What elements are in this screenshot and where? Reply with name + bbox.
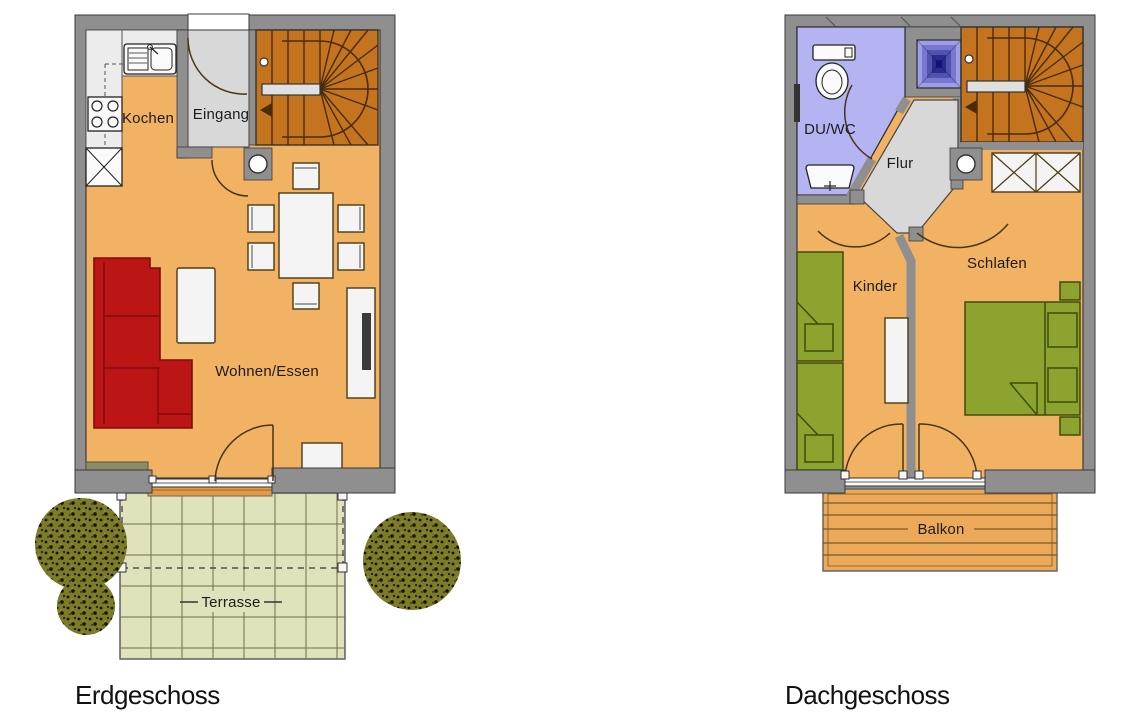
single-bed-icon bbox=[797, 363, 843, 470]
wash-basin-icon bbox=[806, 165, 854, 191]
tree-icon bbox=[363, 512, 461, 610]
nightstand bbox=[1060, 282, 1080, 300]
lowboard-cabinet bbox=[302, 443, 342, 470]
kitchen-sink-icon bbox=[124, 44, 176, 74]
balcony-area: Balkon bbox=[823, 489, 1057, 571]
stair-handrail-slot bbox=[967, 81, 1025, 92]
room-label-child: Kinder bbox=[853, 278, 898, 295]
wardrobe-icon bbox=[992, 153, 1080, 192]
spiral-stairs-ground bbox=[256, 30, 378, 145]
window-sill bbox=[86, 462, 148, 470]
nightstand bbox=[1060, 417, 1080, 435]
room-label-hall: Flur bbox=[887, 155, 914, 172]
pergola-post bbox=[338, 563, 347, 572]
shelf bbox=[885, 318, 908, 403]
tree-icon bbox=[35, 498, 127, 590]
room-label-balcony: Balkon bbox=[917, 521, 964, 538]
attic-floor-plan: DU/WC bbox=[785, 15, 1095, 710]
room-label-kitchen: Kochen bbox=[122, 110, 174, 127]
room-label-entrance: Eingang bbox=[193, 106, 249, 123]
terrace-area: Terrasse bbox=[117, 491, 347, 659]
floor-title-attic: Dachgeschoss bbox=[785, 680, 950, 710]
column-post bbox=[244, 148, 272, 180]
tall-cabinet-icon bbox=[86, 148, 122, 186]
coffee-table bbox=[177, 268, 215, 343]
stair-post-icon bbox=[965, 55, 973, 63]
single-bed-icon bbox=[797, 252, 843, 361]
dining-table bbox=[279, 193, 333, 278]
tv-icon bbox=[362, 313, 371, 370]
stove-icon bbox=[88, 97, 122, 131]
floor-title-ground: Erdgeschoss bbox=[75, 680, 220, 710]
spiral-stairs-attic bbox=[961, 27, 1083, 142]
double-bed-icon bbox=[965, 282, 1080, 435]
room-label-bath: DU/WC bbox=[804, 121, 856, 138]
room-label-terrace: Terrasse bbox=[201, 594, 260, 611]
tv-sideboard bbox=[347, 288, 375, 398]
stair-handrail-slot bbox=[262, 84, 320, 95]
column-post bbox=[950, 148, 982, 180]
room-label-living: Wohnen/Essen bbox=[215, 363, 319, 380]
ground-floor-plan: Kochen Eingang bbox=[35, 14, 461, 710]
stair-post-icon bbox=[260, 58, 268, 66]
tree-icon bbox=[57, 577, 115, 635]
room-label-bedroom: Schlafen bbox=[967, 255, 1027, 272]
floorplan-page: Kochen Eingang bbox=[0, 0, 1129, 720]
floorplan-canvas: Kochen Eingang bbox=[0, 0, 1129, 720]
front-door-opening bbox=[188, 14, 249, 30]
shower-pan-icon bbox=[917, 40, 961, 88]
bath-window bbox=[794, 84, 800, 122]
